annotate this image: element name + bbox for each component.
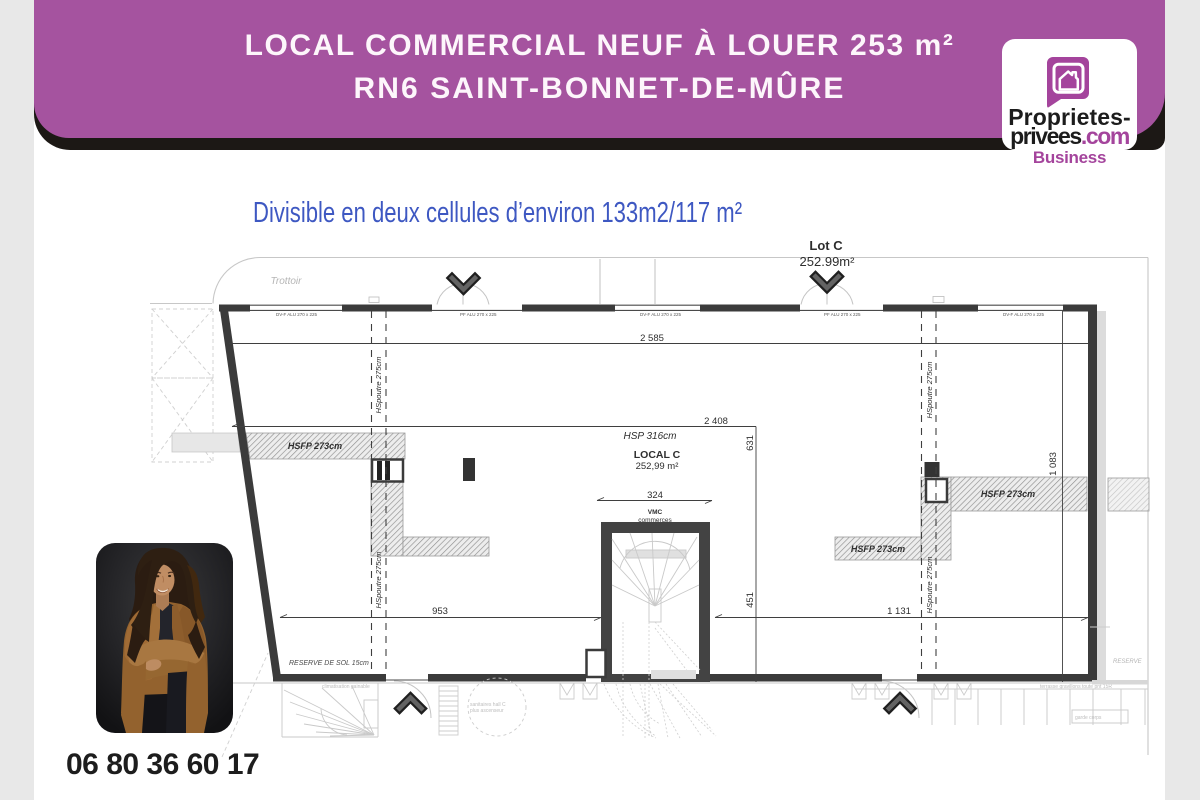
svg-text:252.99m²: 252.99m² [800,254,856,269]
svg-text:RESERVE: RESERVE [1113,659,1143,665]
svg-text:252,99 m²: 252,99 m² [636,461,679,472]
svg-text:HSpoutre 275cm: HSpoutre 275cm [925,362,934,419]
svg-text:VMC: VMC [648,509,663,516]
svg-text:RESERVE DE SOL 15cm: RESERVE DE SOL 15cm [289,660,369,667]
svg-text:plus ascenseur: plus ascenseur [470,708,504,714]
svg-text:Trottoir: Trottoir [271,276,303,287]
svg-text:324: 324 [647,490,663,501]
svg-text:HSpoutre 275cm: HSpoutre 275cm [925,557,934,614]
svg-text:HSP 316cm: HSP 316cm [624,431,677,442]
svg-text:PF ALU 270 x 225: PF ALU 270 x 225 [824,312,861,317]
svg-text:HSFP 273cm: HSFP 273cm [288,441,342,451]
svg-text:1 083: 1 083 [1048,452,1059,476]
svg-text:451: 451 [745,592,756,608]
svg-text:LOCAL C: LOCAL C [634,449,681,461]
svg-text:1 131: 1 131 [887,606,911,617]
svg-text:HSFP 273cm: HSFP 273cm [981,489,1035,499]
svg-text:953: 953 [432,606,448,617]
svg-text:HSpoutre 275cm: HSpoutre 275cm [374,357,383,414]
svg-text:garde corps: garde corps [1075,715,1102,721]
svg-text:DV-F ALU 270 x 225: DV-F ALU 270 x 225 [1003,312,1045,317]
svg-text:PF ALU 270 x 225: PF ALU 270 x 225 [460,312,497,317]
svg-text:DV-F ALU 270 x 225: DV-F ALU 270 x 225 [276,312,318,317]
svg-text:2 585: 2 585 [640,333,664,344]
svg-text:631: 631 [745,435,756,451]
svg-text:HSpoutre 275cm: HSpoutre 275cm [374,552,383,609]
svg-text:2 408: 2 408 [704,416,728,427]
svg-text:HSFP 273cm: HSFP 273cm [851,544,905,554]
svg-text:DV-F ALU 270 x 225: DV-F ALU 270 x 225 [640,312,682,317]
svg-text:commerces: commerces [638,517,672,524]
svg-text:Lot C: Lot C [809,238,843,253]
svg-text:climatisation gainable: climatisation gainable [322,684,370,690]
